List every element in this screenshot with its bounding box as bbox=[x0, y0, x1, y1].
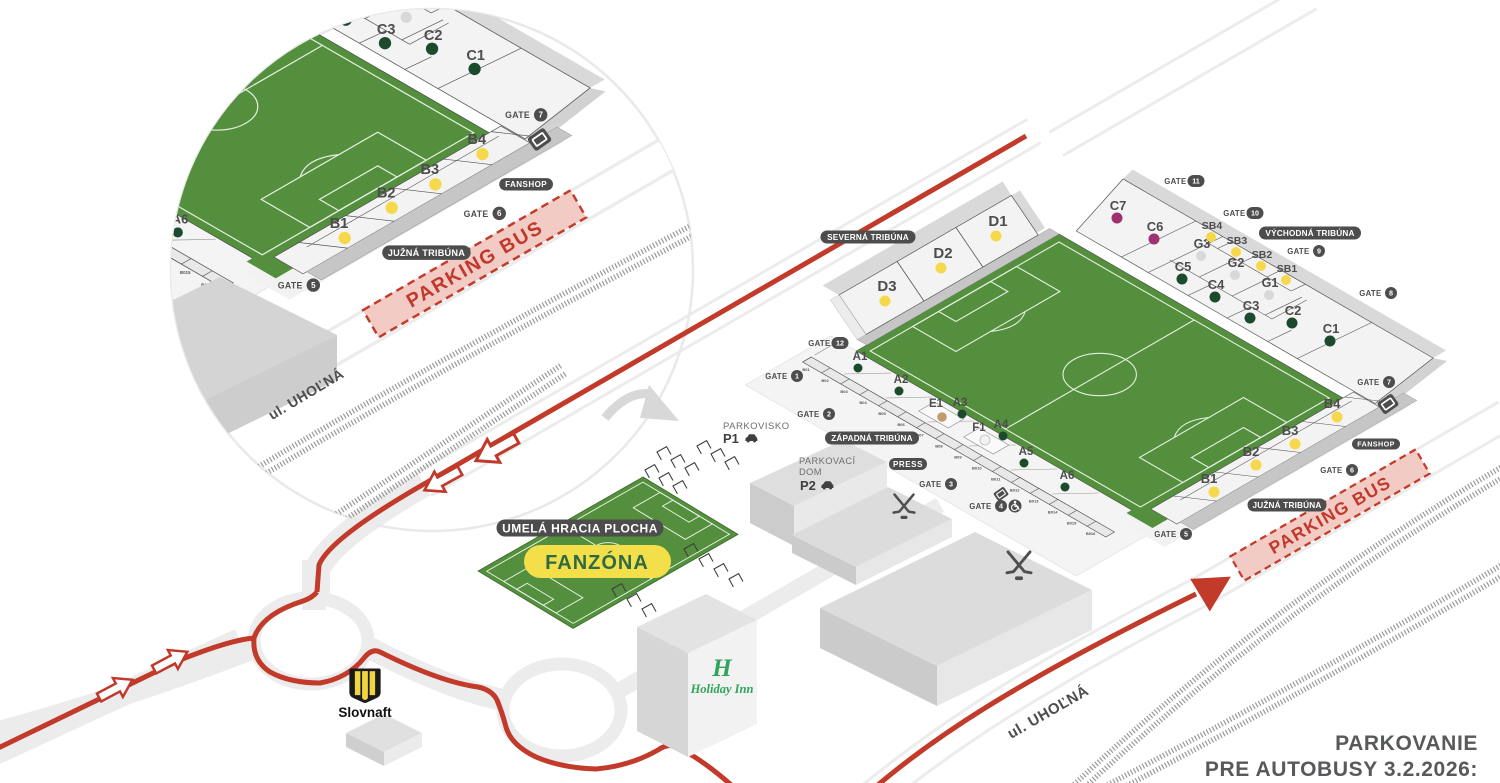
svg-text:Holiday Inn: Holiday Inn bbox=[690, 682, 754, 696]
svg-text:PARKOVANIE: PARKOVANIE bbox=[1335, 732, 1478, 755]
svg-text:P1: P1 bbox=[723, 431, 739, 446]
svg-text:Slovnaft: Slovnaft bbox=[338, 705, 392, 720]
svg-text:UMELÁ HRACIA PLOCHA: UMELÁ HRACIA PLOCHA bbox=[502, 520, 658, 535]
svg-text:FANZÓNA: FANZÓNA bbox=[545, 550, 649, 574]
svg-text:H: H bbox=[711, 655, 733, 682]
svg-text:PRE AUTOBUSY 3.2.2026:: PRE AUTOBUSY 3.2.2026: bbox=[1205, 758, 1478, 781]
